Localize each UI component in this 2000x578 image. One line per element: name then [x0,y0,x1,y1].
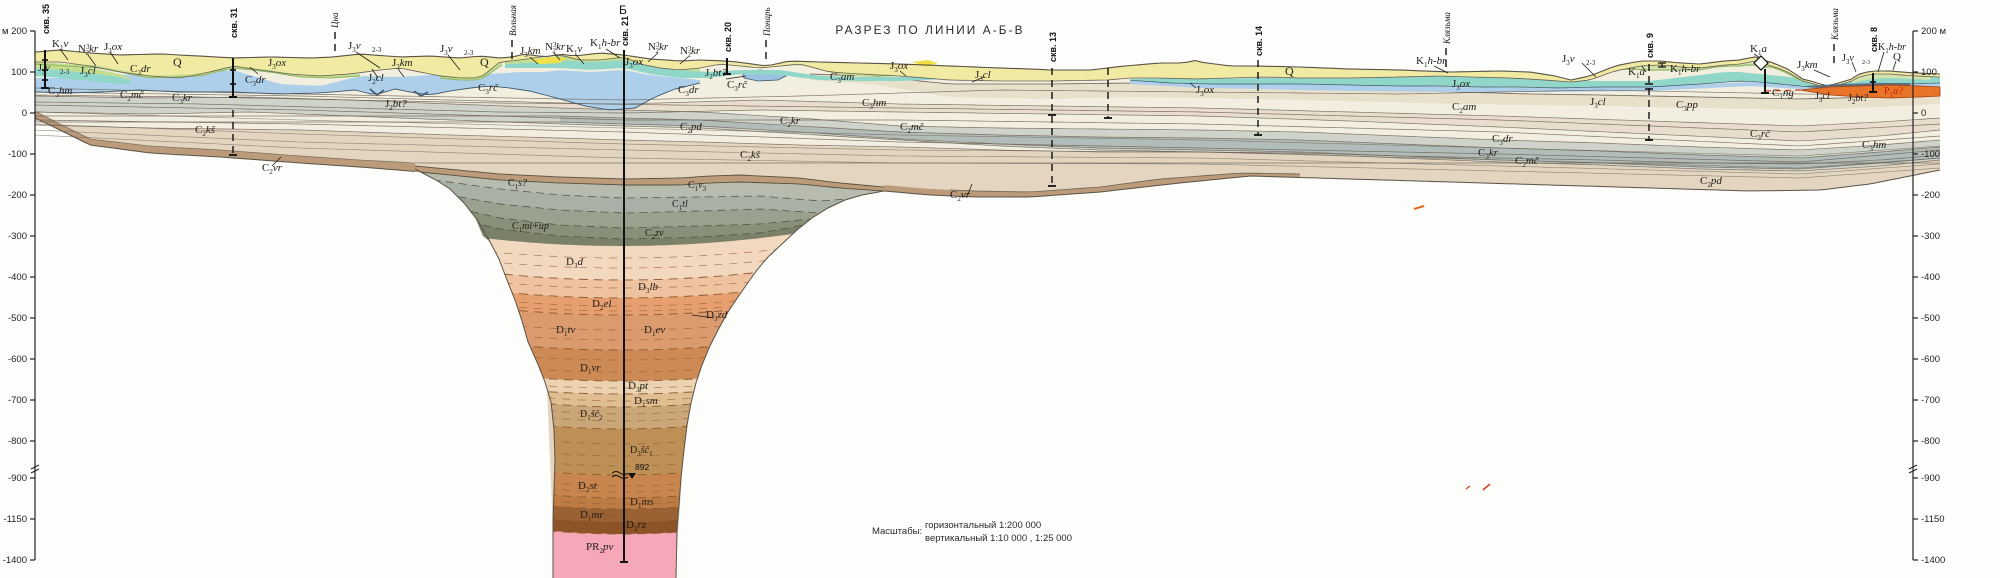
svg-text:J3cl: J3cl [80,65,96,79]
svg-text:C2am: C2am [1452,101,1476,115]
svg-text:скв. 21: скв. 21 [620,16,630,46]
svg-text:C3am: C3am [830,71,854,85]
svg-text:-200: -200 [1921,190,1940,201]
svg-text:100: 100 [1921,67,1937,78]
svg-text:0: 0 [22,108,27,119]
svg-text:200 м: 200 м [1921,26,1946,37]
svg-text:2-3: 2-3 [464,49,474,57]
svg-text:J3km: J3km [1797,59,1818,73]
svg-text:D1mr: D1mr [580,509,604,523]
svg-text:2-3: 2-3 [1586,59,1596,67]
svg-text:скв. 35: скв. 35 [41,4,51,34]
svg-text:D3zd: D3zd [706,309,728,323]
svg-text:скв. 31: скв. 31 [229,8,239,38]
svg-text:K1h-br: K1h-br [1670,63,1701,77]
svg-text:2-3: 2-3 [372,46,382,54]
svg-text:K1h-br: K1h-br [1416,55,1447,69]
svg-text:J3km: J3km [520,45,541,59]
svg-text:C3dr: C3dr [245,74,266,88]
svg-text:-600: -600 [8,354,27,365]
svg-text:Q: Q [173,55,182,69]
svg-text:-400: -400 [1921,272,1940,283]
svg-text:892: 892 [635,462,649,472]
svg-text:Q: Q [480,55,489,69]
svg-text:J3km: J3km [392,57,413,71]
svg-text:скв. 9: скв. 9 [1645,33,1655,58]
svg-text:C3kr: C3kr [172,92,193,106]
svg-text:K1h-br: K1h-br [590,37,621,51]
svg-text:C3pp: C3pp [1676,99,1698,113]
svg-text:РАЗРЕЗ ПО ЛИНИИ А-Б-В: РАЗРЕЗ ПО ЛИНИИ А-Б-В [835,23,1024,37]
svg-text:100: 100 [11,67,27,78]
svg-text:горизонтальный 1:200 000: горизонтальный 1:200 000 [925,520,1041,531]
svg-text:J3ox: J3ox [1452,78,1470,92]
svg-text:C2mč: C2mč [120,89,145,103]
svg-text:C3rč: C3rč [727,79,748,93]
svg-text:C2kš: C2kš [195,124,216,138]
svg-text:D1ms: D1ms [630,496,654,510]
svg-text:N32kr: N32kr [680,45,701,59]
svg-text:-1150: -1150 [3,514,27,525]
svg-text:J2bt?: J2bt? [705,67,727,81]
svg-text:-100: -100 [1921,149,1940,160]
svg-text:-600: -600 [1921,354,1940,365]
svg-text:N32kr: N32kr [78,43,99,57]
svg-text:Понарь: Понарь [762,7,772,37]
svg-text:C3rč: C3rč [1750,128,1771,142]
svg-text:C2kš: C2kš [740,149,761,163]
svg-text:J3ox: J3ox [1196,84,1214,98]
svg-text:-800: -800 [1921,436,1940,447]
svg-text:2-3: 2-3 [1862,60,1870,66]
svg-text:Клязьма: Клязьма [1442,12,1452,45]
svg-text:D1sm: D1sm [634,395,658,409]
svg-text:J2bt?: J2bt? [385,98,407,112]
svg-text:0: 0 [1921,108,1926,119]
svg-text:м 200: м 200 [2,26,27,37]
svg-text:J3cl: J3cl [1590,96,1606,110]
svg-text:скв. 14: скв. 14 [1254,26,1264,56]
svg-text:-300: -300 [1921,231,1940,242]
svg-text:-1150: -1150 [1921,514,1945,525]
svg-text:Масштабы:: Масштабы: [872,526,922,537]
svg-text:-200: -200 [8,190,27,201]
svg-text:-900: -900 [8,473,27,484]
svg-text:-700: -700 [8,395,27,406]
svg-text:-700: -700 [1921,395,1940,406]
svg-text:D1vr: D1vr [580,362,601,376]
svg-text:вертикальный 1:10 000 , 1:25 0: вертикальный 1:10 000 , 1:25 000 [925,533,1072,544]
svg-text:C2pd: C2pd [1700,175,1722,189]
svg-text:C2vr: C2vr [950,189,971,203]
svg-text:C2kr: C2kr [780,115,801,129]
svg-text:D1ev: D1ev [644,324,665,338]
svg-text:C2mč: C2mč [1515,155,1540,169]
svg-text:C3hm: C3hm [862,97,886,111]
svg-text:скв. 20: скв. 20 [723,22,733,52]
svg-text:-100: -100 [8,149,27,160]
svg-text:C2pd: C2pd [680,121,702,135]
svg-text:Q: Q [1893,51,1901,63]
svg-text:N32kr: N32kr [648,41,669,55]
svg-text:-500: -500 [8,313,27,324]
svg-text:J3ox: J3ox [104,41,122,55]
svg-text:C3dr: C3dr [678,84,699,98]
svg-text:D3pt: D3pt [628,380,649,394]
svg-text:Q: Q [1285,64,1294,78]
svg-text:J3ox: J3ox [890,60,908,74]
svg-text:C3dr: C3dr [1492,133,1513,147]
svg-text:-1400: -1400 [3,555,27,566]
svg-text:C3dr: C3dr [130,63,151,77]
svg-text:-500: -500 [1921,313,1940,324]
svg-text:C3kr: C3kr [1478,147,1499,161]
svg-text:J2cl: J2cl [368,72,384,86]
svg-text:J3cl: J3cl [975,69,991,83]
svg-text:Вольная: Вольная [508,5,518,36]
svg-text:-900: -900 [1921,473,1940,484]
svg-text:J3ox: J3ox [268,57,286,71]
svg-text:скв. 13: скв. 13 [1048,32,1058,62]
svg-text:Б: Б [619,3,627,17]
svg-text:Клязьма: Клязьма [1830,8,1840,41]
svg-text:-300: -300 [8,231,27,242]
svg-text:2-3: 2-3 [60,68,70,76]
svg-text:C3hm: C3hm [1862,139,1886,153]
svg-text:N32kr: N32kr [545,41,566,55]
svg-text:Цна: Цна [330,12,340,29]
svg-text:-1400: -1400 [1921,555,1945,566]
svg-text:C2mč: C2mč [900,121,925,135]
svg-text:C3rč: C3rč [478,82,499,96]
svg-text:-400: -400 [8,272,27,283]
svg-text:C2vr: C2vr [262,162,283,176]
svg-text:J3ox: J3ox [625,56,643,70]
svg-text:C1ng: C1ng [1772,87,1794,101]
svg-text:C3hm: C3hm [48,85,72,99]
svg-text:-800: -800 [8,436,27,447]
